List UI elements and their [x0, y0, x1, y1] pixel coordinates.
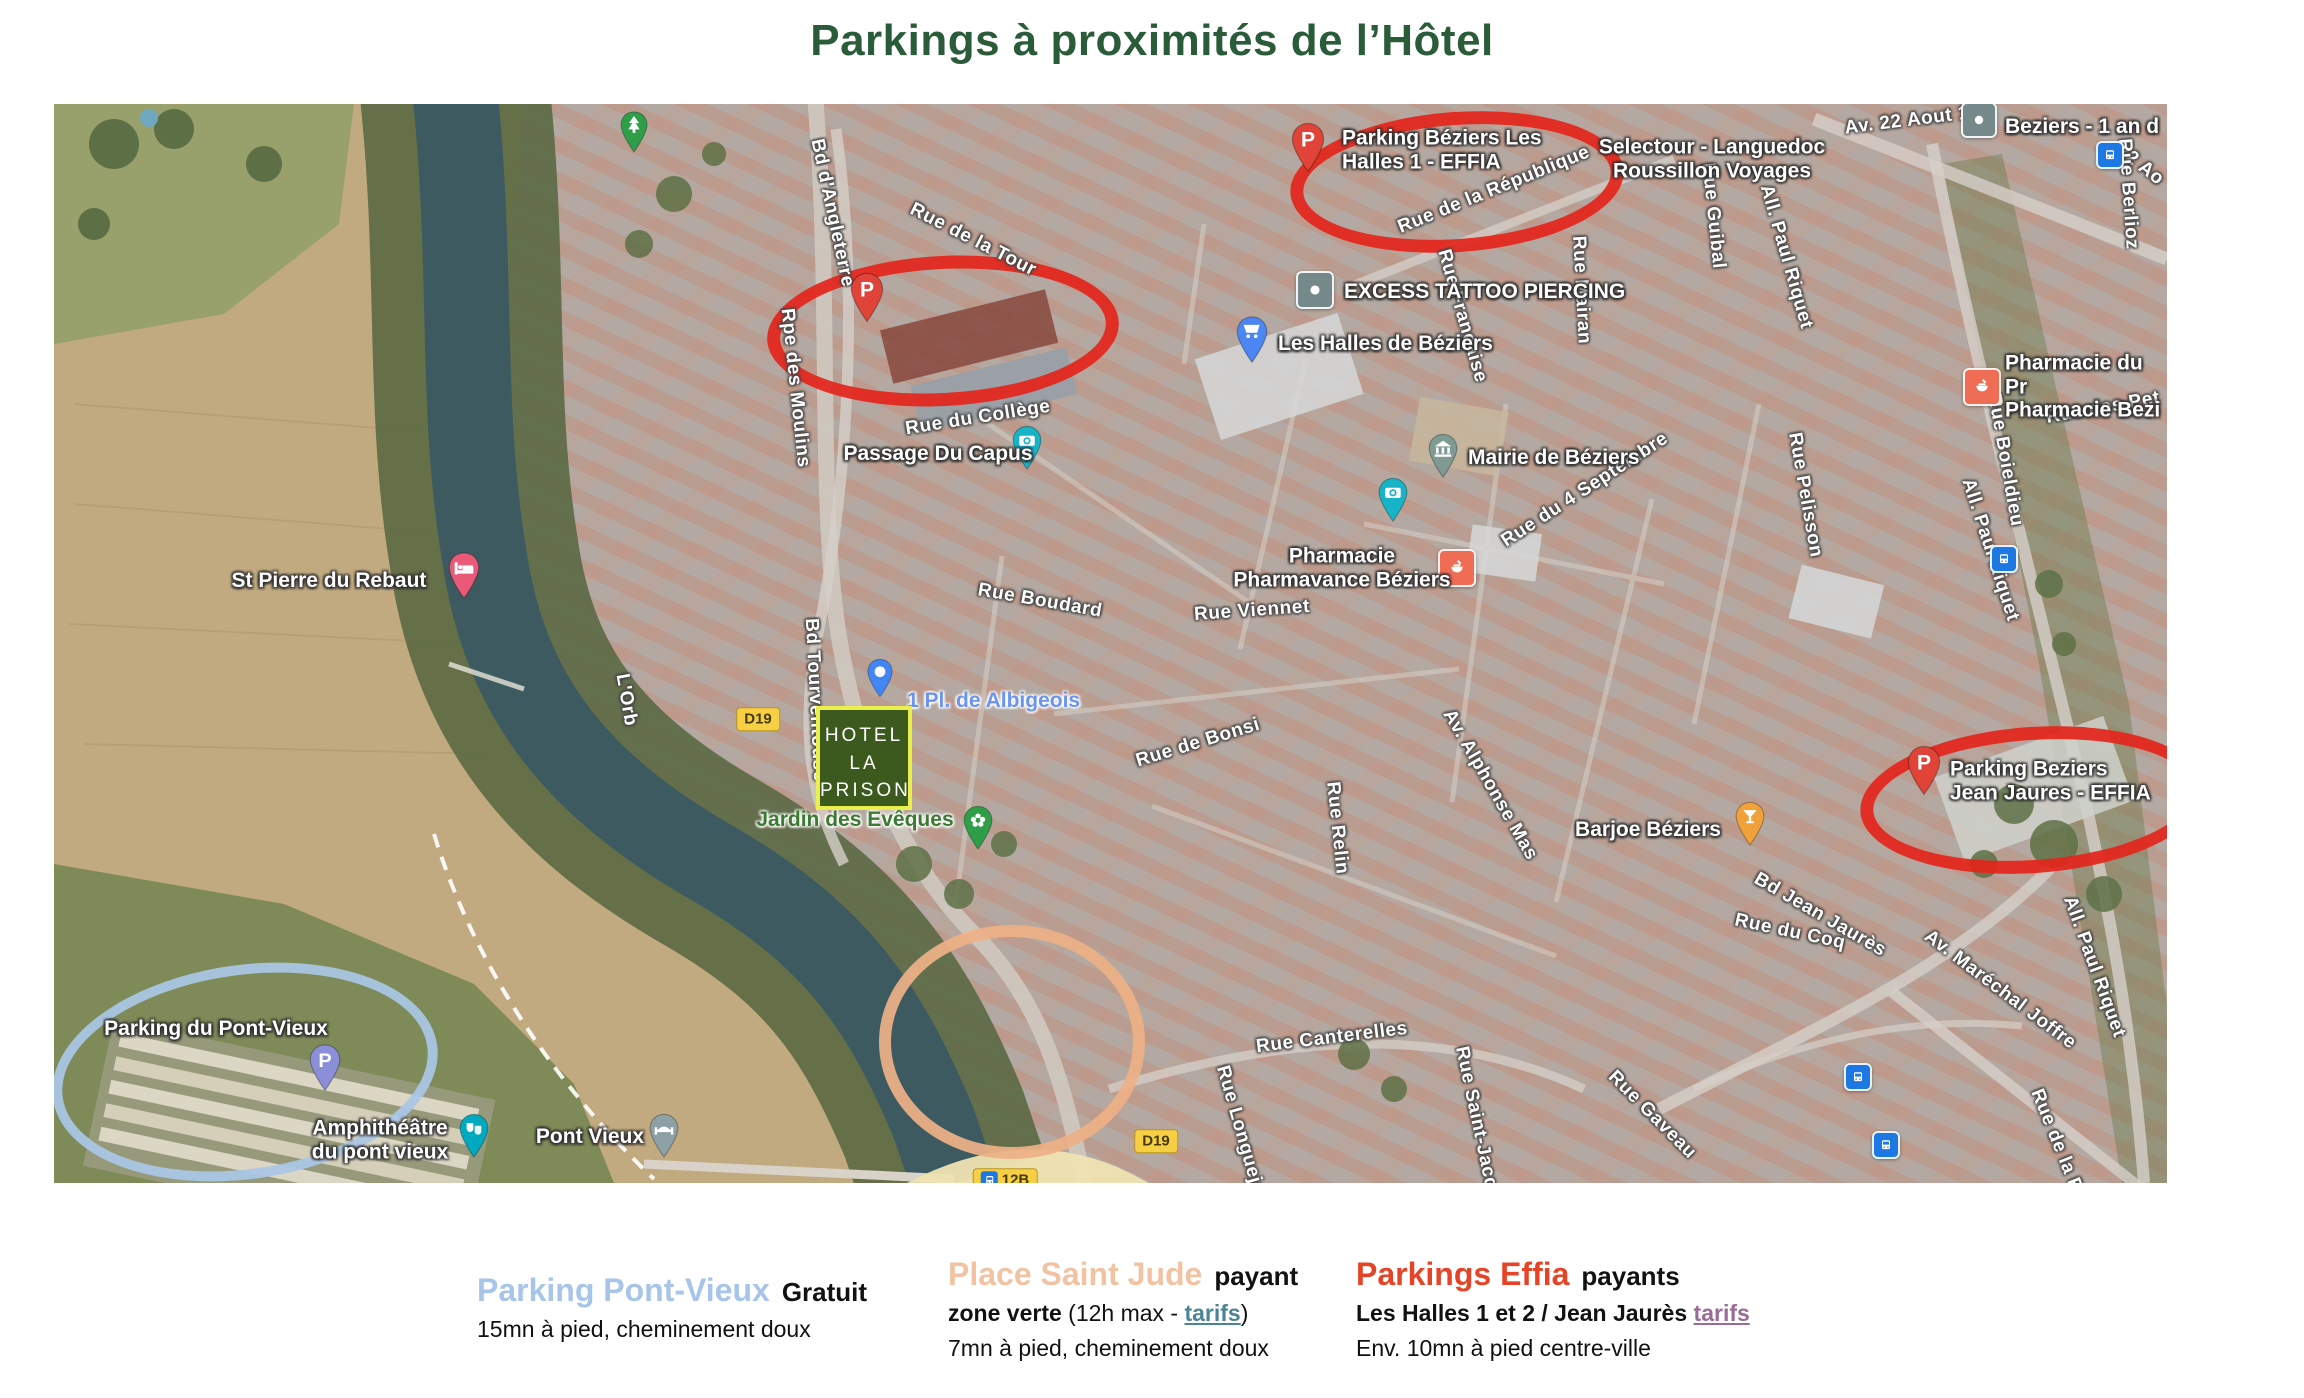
street-label-rue-saint-jacq: Rue Saint-Jacq: [1450, 1044, 1502, 1183]
parking-les-halles-pin[interactable]: P: [1290, 122, 1326, 173]
legend-text: zone verte: [948, 1300, 1062, 1326]
legend-parking-pont-vieux: Parking Pont-VieuxGratuit15mn à pied, ch…: [477, 1272, 867, 1344]
bus-icon: [981, 1172, 998, 1184]
legend-text: (12h max -: [1062, 1300, 1185, 1326]
hotel-logo-line: HOTEL: [820, 722, 908, 750]
orange-ellipse-place-saint-jude: [879, 925, 1145, 1159]
svg-text:P: P: [1917, 752, 1931, 775]
legend-parkings-effia-detail: Les Halles 1 et 2 / Jean Jaurès tarifs: [1356, 1299, 1750, 1328]
legend-parkings-effia: Parkings EffiapayantsLes Halles 1 et 2 /…: [1356, 1256, 1750, 1363]
street-label-rue-relin: Rue Relin: [1321, 781, 1353, 876]
excess-tattoo-square[interactable]: [1296, 271, 1334, 309]
legend-place-saint-jude-tag: payant: [1214, 1261, 1298, 1291]
les-halles-cart-pin[interactable]: [1235, 316, 1269, 364]
hotel-logo-line: LA: [820, 750, 908, 778]
parking-jean-jaures-label[interactable]: Parking Beziers Jean Jaures - EFFIA: [1950, 757, 2151, 804]
legend-place-saint-jude-detail: zone verte (12h max - tarifs): [948, 1299, 1298, 1328]
legend-parking-pont-vieux-tag: Gratuit: [782, 1277, 867, 1307]
pont-vieux-label[interactable]: Pont Vieux: [536, 1125, 644, 1149]
street-label-l-orb: L'Orb: [611, 672, 642, 728]
parking-centre-pin[interactable]: P: [849, 272, 885, 323]
legend-parkings-effia-title: Parkings Effia: [1356, 1256, 1569, 1292]
legend-text: 7mn à pied, cheminement doux: [948, 1335, 1269, 1361]
legend-parkings-effia-detail: Env. 10mn à pied centre-ville: [1356, 1334, 1750, 1363]
tarifs-link[interactable]: tarifs: [1184, 1300, 1240, 1326]
selectour-label[interactable]: Selectour - Languedoc Roussillon Voyages: [1599, 135, 1825, 182]
st-pierre-du-rebaut-bed-pin[interactable]: [447, 552, 481, 600]
photo-spot-camera-pin[interactable]: [1377, 477, 1409, 522]
street-label-all-paul-riquet: All. Paul Riquet: [1755, 182, 1817, 331]
pont-vieux-bridge-pin[interactable]: [648, 1113, 680, 1158]
street-label-rue-pelisson: Rue Pelisson: [1783, 431, 1827, 559]
barjoe-cocktail-pin[interactable]: [1734, 801, 1766, 846]
excess-tattoo-label[interactable]: EXCESS TATTOO PIERCING: [1344, 280, 1625, 304]
hotel-logo-line: PRISON: [820, 777, 908, 805]
street-label-rue-longueja: Rue Longueja: [1211, 1063, 1269, 1183]
route-badge-d19-a: D19: [736, 707, 780, 731]
street-label-av-alphonse-mas: Av. Alphonse Mas: [1438, 706, 1542, 865]
barjoe-label[interactable]: Barjoe Béziers: [1575, 818, 1721, 842]
jardin-des-eveques-label[interactable]: Jardin des Evêques: [756, 808, 953, 832]
legend-place-saint-jude-detail: 7mn à pied, cheminement doux: [948, 1334, 1298, 1363]
st-pierre-du-rebaut-label[interactable]: St Pierre du Rebaut: [232, 569, 427, 593]
map-satellite-view[interactable]: HOTEL LA PRISON Av. 22 Aout 122 AoRue de…: [54, 104, 2167, 1183]
parking-pont-vieux-label[interactable]: Parking du Pont-Vieux: [104, 1017, 328, 1041]
street-label-av-mar-chal-joffre: Av. Maréchal Joffre: [1920, 926, 2081, 1055]
red-ellipse-parking-centre: [763, 247, 1122, 415]
street-label-all-paul-riquet: All. Paul Riquet: [2058, 893, 2130, 1040]
bus-stop-1[interactable]: [2096, 141, 2124, 169]
tarifs-link[interactable]: tarifs: [1694, 1300, 1750, 1326]
pharmacie-pharmavance-label[interactable]: Pharmacie Pharmavance Béziers: [1233, 544, 1450, 591]
legend-text: ): [1241, 1300, 1249, 1326]
les-halles-label[interactable]: Les Halles de Béziers: [1278, 332, 1493, 356]
albigeois-dot-pin[interactable]: [866, 658, 894, 698]
street-label-rue-gaveau: Rue Gaveau: [1603, 1066, 1700, 1163]
street-label-av-22-aout-1: Av. 22 Aout 1: [1843, 104, 1970, 140]
street-label-rue-fran-aise: Rue Française: [1432, 247, 1491, 385]
page-title: Parkings à proximités de l’Hôtel: [0, 16, 2304, 66]
mairie-label[interactable]: Mairie de Béziers: [1468, 446, 1640, 470]
legend-text: Env. 10mn à pied centre-ville: [1356, 1335, 1651, 1361]
legend-place-saint-jude-title: Place Saint Jude: [948, 1256, 1202, 1292]
amphitheatre-masks-pin[interactable]: [458, 1113, 490, 1158]
legend-text: 15mn à pied, cheminement doux: [477, 1316, 811, 1342]
passage-du-capus-label[interactable]: Passage Du Capus: [843, 442, 1032, 466]
street-label-rue-canterelles: Rue Canterelles: [1255, 1018, 1409, 1058]
albigeois-label[interactable]: 1 Pl. de Albigeois: [907, 689, 1080, 713]
street-label-rue-viennet: Rue Viennet: [1193, 596, 1310, 626]
amphitheatre-label[interactable]: Amphithéâtre du pont vieux: [312, 1116, 449, 1163]
bus-stop-3[interactable]: [1844, 1063, 1872, 1091]
legend-parking-pont-vieux-title: Parking Pont-Vieux: [477, 1272, 770, 1308]
legend-parkings-effia-tag: payants: [1581, 1261, 1679, 1291]
hotel-la-prison-logo: HOTEL LA PRISON: [816, 706, 912, 810]
route-badge-d19-b: D19: [1134, 1129, 1178, 1153]
svg-text:P: P: [860, 279, 874, 302]
parking-jean-jaures-pin[interactable]: P: [1906, 745, 1942, 796]
parking-pont-vieux-pin[interactable]: P: [308, 1044, 342, 1092]
jardin-des-eveques-flower-pin[interactable]: [962, 805, 994, 850]
street-label-rue-de-la-rot: Rue de la Rot: [2026, 1086, 2095, 1183]
legend-text: Les Halles 1 et 2 / Jean Jaurès: [1356, 1300, 1694, 1326]
bus-stop-4[interactable]: [1872, 1131, 1900, 1159]
legend-parking-pont-vieux-detail: 15mn à pied, cheminement doux: [477, 1315, 867, 1344]
route-badge-12b: 12B: [973, 1168, 1038, 1183]
street-label-bd-d-angleterre: Bd d'Angleterre: [806, 137, 859, 289]
mairie-bank-pin[interactable]: [1427, 433, 1459, 478]
street-label-rue-de-bonsi: Rue de Bonsi: [1133, 714, 1262, 773]
park-tree-pin[interactable]: [619, 111, 649, 154]
legend-place-saint-jude: Place Saint Judepayantzone verte (12h ma…: [948, 1256, 1298, 1363]
bus-stop-2[interactable]: [1990, 545, 2018, 573]
pharmacie-du-progres-square[interactable]: [1963, 368, 2001, 406]
street-label-rue-boudard: Rue Boudard: [976, 579, 1104, 623]
svg-text:P: P: [318, 1050, 331, 1072]
beziers-1-an-label[interactable]: Beziers - 1 an d: [2005, 115, 2159, 139]
svg-text:P: P: [1301, 129, 1315, 152]
map-overlay: Av. 22 Aout 122 AoRue de la RépubliqueRu…: [54, 104, 2167, 1183]
pharmacie-du-progres-label[interactable]: Pharmacie du Pr Pharmacie Bezi: [2005, 352, 2167, 423]
beziers-poi-square[interactable]: [1961, 104, 1997, 138]
parking-les-halles-label[interactable]: Parking Béziers Les Halles 1 - EFFIA: [1342, 126, 1542, 173]
